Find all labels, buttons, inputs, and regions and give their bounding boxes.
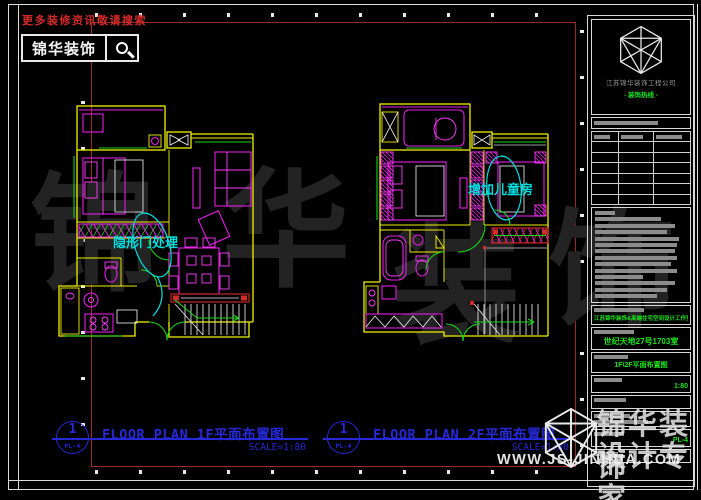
- search-icon: [107, 36, 137, 60]
- scale-row: 1:80: [591, 375, 691, 393]
- scale-value: 1:80: [594, 383, 688, 390]
- sofa-1f: [215, 152, 251, 206]
- plan-label-2f: 1 PL-4 FLOOR PLAN 2F平面布置图 SCALE=1:80: [317, 419, 571, 461]
- plan-scale-1f: SCALE=1:80: [249, 442, 306, 453]
- floor-plan-2f-drawing: 增加儿童房: [352, 90, 556, 342]
- ruler-ticks-bottom: [95, 470, 573, 474]
- wardrobe-band-2f: [492, 228, 548, 243]
- marker-sheet-ref: PL-4: [336, 442, 352, 450]
- designer-row: [591, 411, 691, 427]
- brand-search-box: 锦华装饰: [21, 34, 139, 62]
- plan-title-2f: FLOOR PLAN 2F平面布置图: [373, 423, 555, 443]
- sink-2f: [413, 235, 423, 245]
- marker-number: 1: [69, 423, 77, 436]
- notes-box: [591, 207, 691, 303]
- project-name-row: [591, 117, 691, 129]
- company-hotline: - 装饰热线 -: [594, 89, 688, 99]
- stairs-1f: [171, 294, 249, 335]
- drawing-title-row: 1F\2F平面布置图: [591, 352, 691, 373]
- studio-row: 江苏锦华装饰&高端住宅空间设计工作室: [591, 305, 691, 325]
- floor-plan-1f-drawing: 隐形门处理: [57, 90, 261, 342]
- drawing-sheet: 锦 华 装 饰 更多装修资讯敬请搜索 锦华装饰: [0, 0, 701, 500]
- ruler-ticks-top: [95, 13, 573, 17]
- plan-label-1f: 1 PL-4 FLOOR PLAN 1F平面布置图 SCALE=1:80: [46, 419, 308, 461]
- company-name: 江苏锦华装饰工程公司: [594, 77, 688, 87]
- plan-scale-2f: SCALE=1:80: [512, 442, 569, 453]
- stairs-2f: [470, 301, 538, 335]
- outer-frame-inner-left: [18, 4, 19, 490]
- brand-logo-text: 锦华装饰: [23, 36, 105, 60]
- detail-marker-2f: 1 PL-4: [327, 421, 360, 454]
- plan-title-1f: FLOOR PLAN 1F平面布置图: [102, 423, 284, 443]
- sink-1f: [66, 293, 74, 299]
- sheet-number-row: PL-4: [591, 429, 691, 447]
- marker-number: 1: [340, 423, 348, 436]
- title-block: 江苏锦华装饰工程公司 - 装饰热线 - 江苏锦华装饰&高端住宅空间设: [587, 15, 695, 487]
- door-leaf-2f: [460, 178, 467, 208]
- marker-sheet-ref: PL-4: [65, 442, 81, 450]
- bathtub-2f: [383, 236, 406, 280]
- revision-table: [591, 131, 691, 205]
- hatch-floor-2f: [366, 314, 442, 328]
- bed-master-2f: [388, 162, 446, 220]
- wardrobe-left-2f: [381, 152, 393, 220]
- bed-1f: [83, 158, 143, 214]
- date-row: [591, 395, 691, 409]
- ruler-ticks-right: [580, 30, 584, 450]
- project-address-row: 世纪天地27号1703室: [591, 327, 691, 350]
- extra-row: [591, 449, 691, 463]
- cube-logo-icon: [616, 25, 666, 75]
- project-address: 世纪天地27号1703室: [594, 336, 688, 347]
- outer-frame-inner-right: [697, 4, 698, 490]
- stove-1f: [85, 314, 113, 332]
- sheet-number: PL-4: [594, 437, 688, 444]
- tv-unit-1f: [193, 168, 200, 208]
- furniture-2f: [366, 107, 548, 328]
- annotation-text-2f: 增加儿童房: [468, 182, 533, 197]
- company-logo-box: 江苏锦华装饰工程公司 - 装饰热线 -: [591, 19, 691, 115]
- washer-1f: [84, 293, 98, 307]
- detail-marker-1f: 1 PL-4: [56, 421, 89, 454]
- studio-line: 江苏锦华装饰&高端住宅空间设计工作室: [594, 314, 688, 322]
- drawing-title: 1F\2F平面布置图: [594, 360, 688, 370]
- corridor-2f: [483, 246, 547, 334]
- annotation-text-1f: 隐形门处理: [113, 235, 178, 250]
- promo-text: 更多装修资讯敬请搜索: [22, 12, 147, 28]
